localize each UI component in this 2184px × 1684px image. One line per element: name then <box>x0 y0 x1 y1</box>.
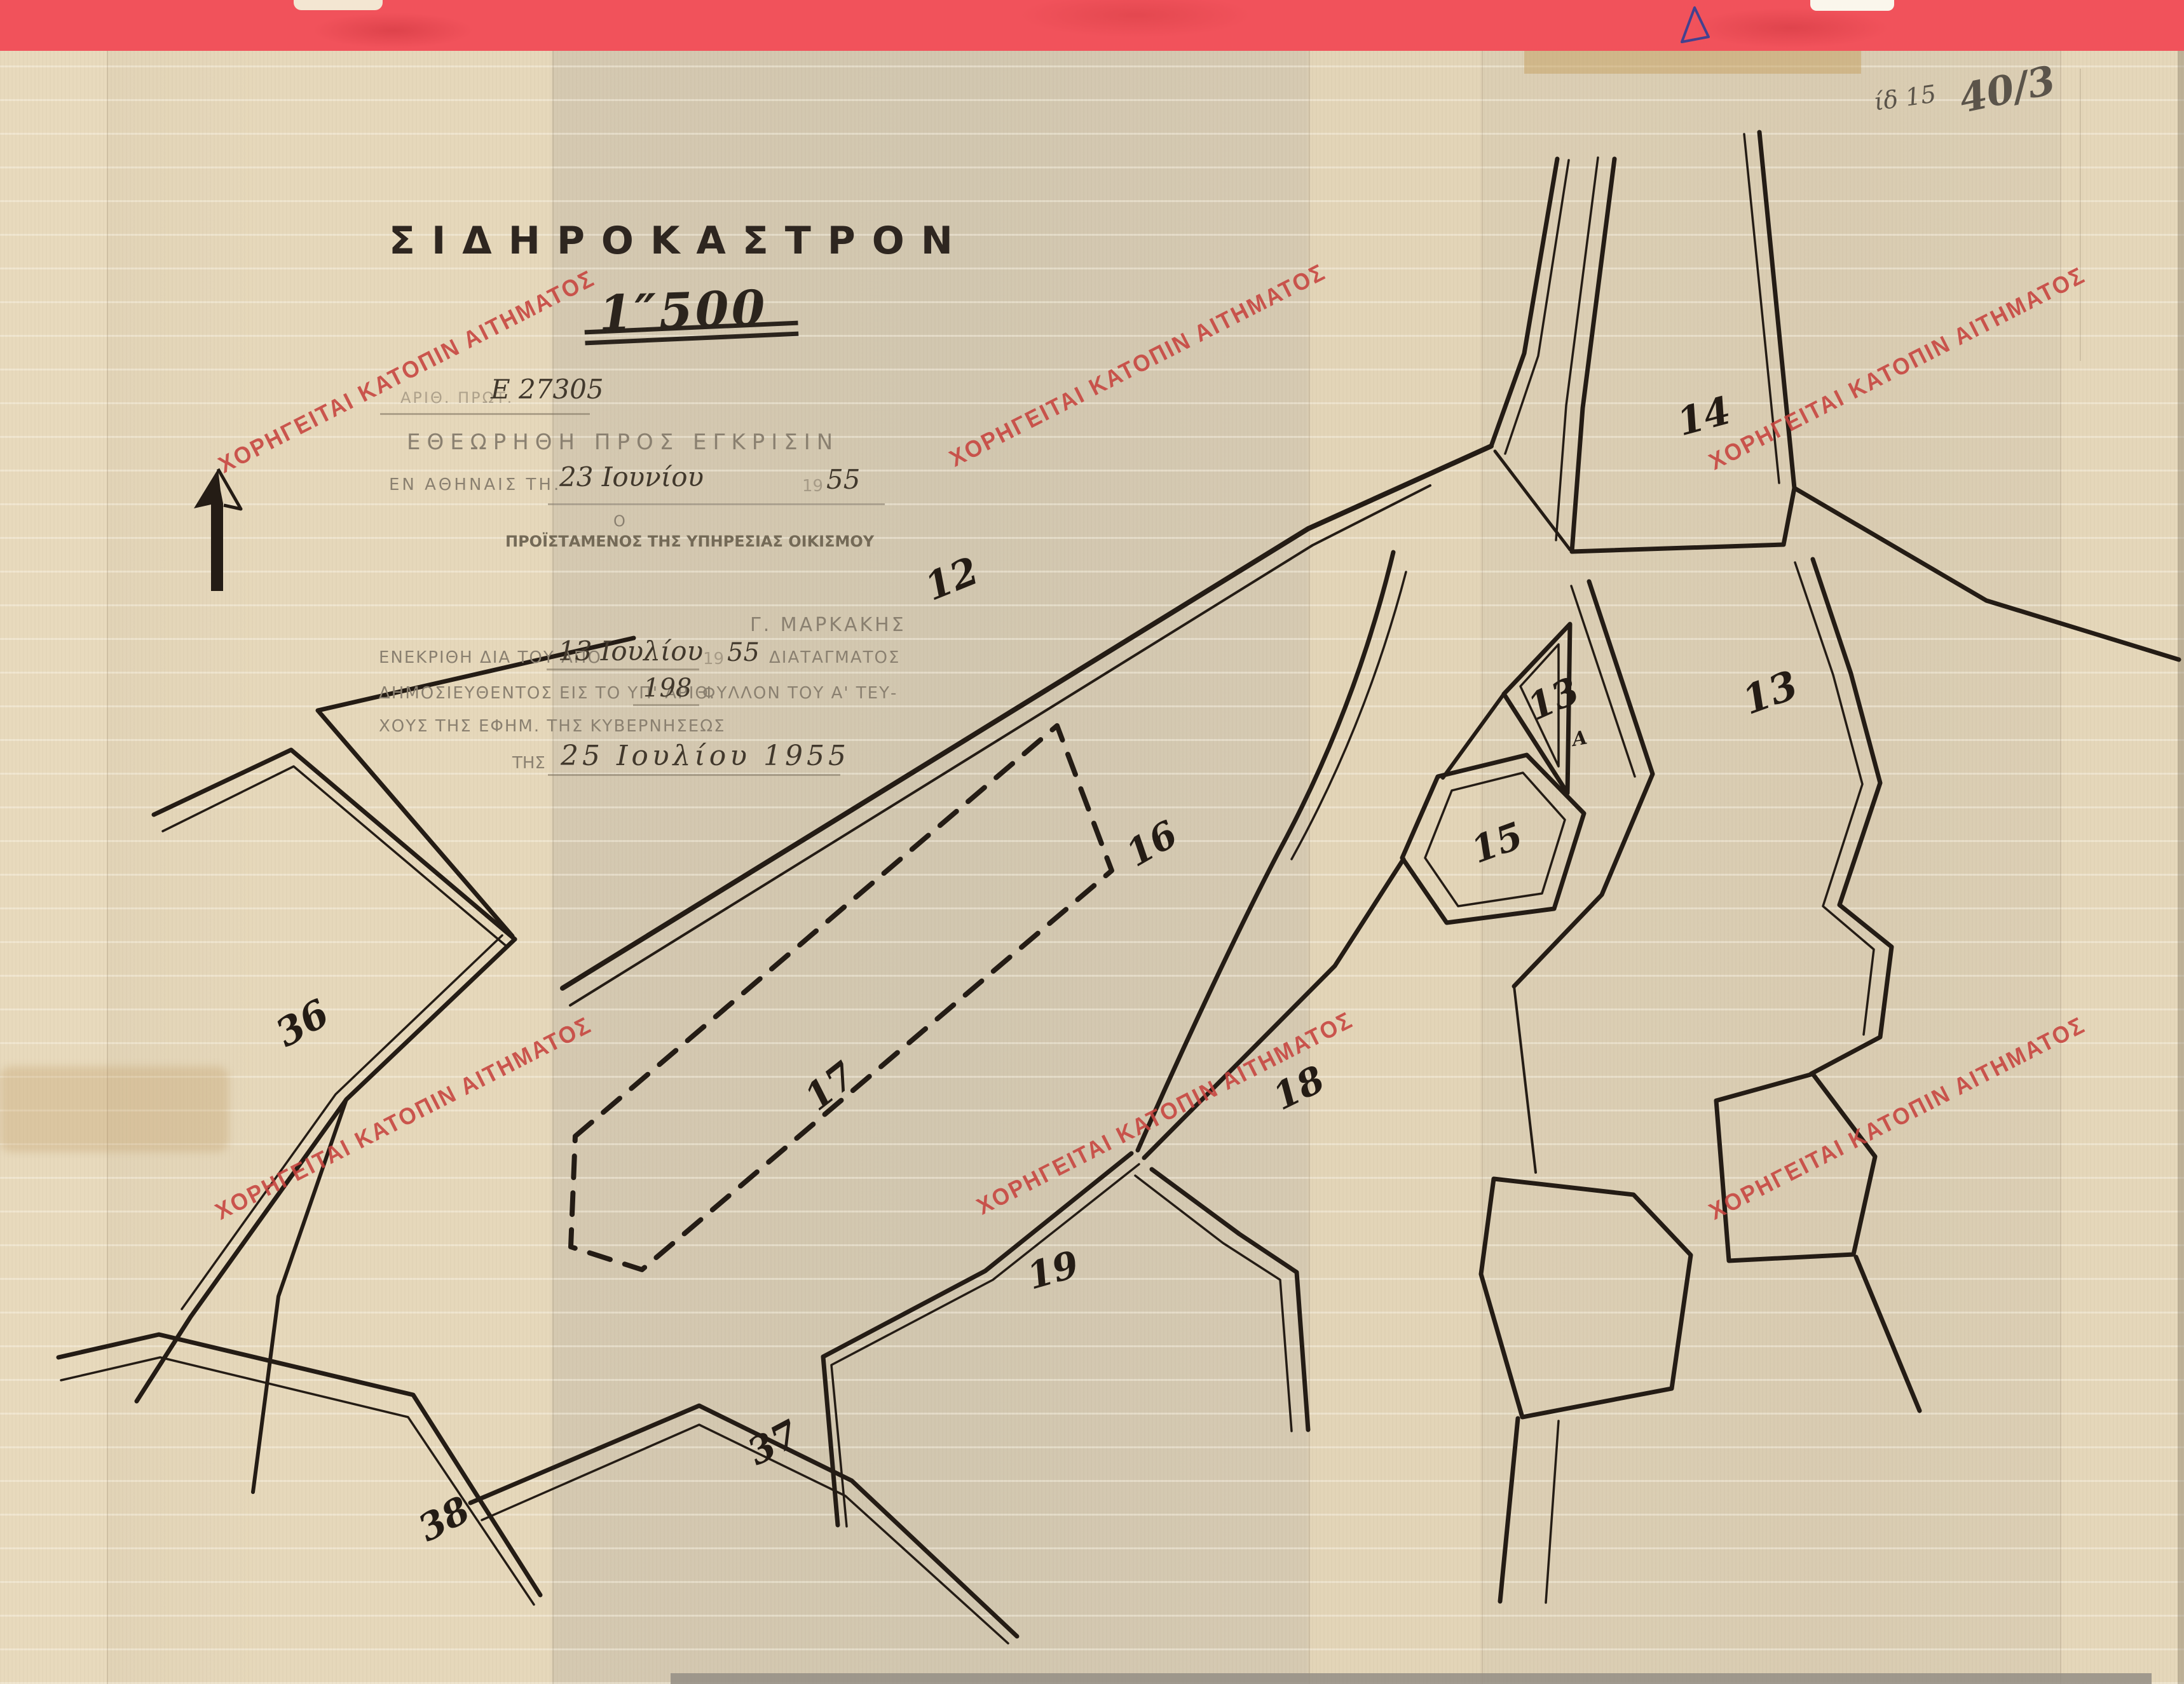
block-number-label: 38 <box>411 1488 477 1550</box>
block-number-label: 15 <box>1466 813 1529 872</box>
block-number-label: 13 <box>1521 669 1585 729</box>
block-number-label: 14 <box>1672 388 1735 445</box>
street-line <box>1443 694 1504 778</box>
red-binding-strip <box>0 0 2184 51</box>
street-line <box>1794 488 2179 660</box>
street-line <box>823 1153 1131 1525</box>
street-line <box>318 638 634 936</box>
street-line <box>182 935 502 1309</box>
protocol-number: Ε 27305 <box>491 374 604 405</box>
block-number-label: 17 <box>796 1054 863 1119</box>
street-line <box>58 1334 540 1595</box>
block-number-label: 16 <box>1119 812 1185 875</box>
stamp-year-printed: 19 <box>802 477 823 496</box>
street-line <box>1572 545 1784 552</box>
north-arrow-icon <box>194 469 241 591</box>
street-line <box>1514 581 1653 986</box>
decree-line2-suffix: ΦΥΛΛΟΝ ΤΟΥ Α' ΤΕΥ- <box>702 684 897 703</box>
street-line <box>1292 572 1406 859</box>
signer-title: ΠΡΟΪΣΤΑΜΕΝΟΣ ΤΗΣ ΥΠΗΡΕΣΙΑΣ ΟΙΚΙΣΜΟΥ <box>505 533 874 550</box>
block-number-label: 13 <box>1737 662 1804 724</box>
block-outline <box>1481 1179 1691 1417</box>
fold-crease <box>2080 69 2081 361</box>
street-line <box>1572 159 1614 552</box>
signer-article: Ο <box>613 512 625 530</box>
stamp-place: ΕΝ ΑΘΗΝΑΙΣ ΤΗ. <box>389 475 561 494</box>
street-line <box>1500 1418 1518 1601</box>
decree-line4-prefix: ΤΗΣ <box>512 754 545 773</box>
street-line <box>1795 562 1874 1035</box>
stamp-underline <box>548 503 885 505</box>
punch-hole <box>1810 0 1894 11</box>
stamp-underline <box>633 704 699 706</box>
decree-line3: ΧΟΥΣ ΤΗΣ ΕΦΗΜ. ΤΗΣ ΚΥΒΕΡΝΗΣΕΩΣ <box>379 717 726 736</box>
paper-tear <box>294 0 383 10</box>
street-line <box>1152 1169 1308 1430</box>
decree-gazette-number: 198 <box>643 674 692 703</box>
decree-line1-suffix: ΔΙΑΤΑΓΜΑΤΟΣ <box>769 648 900 667</box>
street-network <box>58 132 2179 1643</box>
street-line <box>1856 1257 1920 1411</box>
decree-year: 55 <box>727 638 760 667</box>
stamp-heading: ΕΘΕΩΡΗΘΗ ΠΡΟΣ ΕΓΚΡΙΣΙΝ <box>407 430 839 455</box>
sheet-title: ΣΙΔΗΡΟΚΑΣΤΡΟΝ <box>389 219 969 263</box>
block-number-label: 12 <box>919 548 985 609</box>
scanned-town-plan-sheet: 12141313Α1516171819363738 ΑΡΙΘ. ΠΡΩΤ. Ε … <box>0 0 2184 1684</box>
signer-name: Γ. ΜΑΡΚΑΚΗΣ <box>750 614 906 636</box>
street-line <box>61 1357 534 1605</box>
block-number-labels: 12141313Α1516171819363738 <box>268 388 1803 1550</box>
stamp-year: 55 <box>826 464 860 495</box>
stamp-date: 23 Ιουνίου <box>559 461 704 492</box>
stamp-underline <box>547 669 699 670</box>
block-number-label: 37 <box>741 1411 806 1474</box>
street-line <box>1546 1421 1559 1603</box>
decree-date: 13 Ιουλίου <box>558 635 703 667</box>
street-line <box>482 1425 1008 1643</box>
decree-publication-date: 25 Ιουλίου 1955 <box>561 740 850 772</box>
pen-triangle-mark <box>1676 5 1720 50</box>
stamp-underline <box>548 774 840 776</box>
block-number-label: 36 <box>268 991 336 1056</box>
block-number-label: Α <box>1569 726 1589 751</box>
street-line <box>154 750 515 939</box>
decree-year-printed: 19 <box>703 649 724 669</box>
street-line <box>1514 986 1536 1172</box>
street-plan-drawing: 12141313Α1516171819363738 <box>0 0 2184 1684</box>
street-line <box>163 766 507 947</box>
stamp-underline <box>380 413 590 415</box>
street-line <box>1505 160 1569 454</box>
